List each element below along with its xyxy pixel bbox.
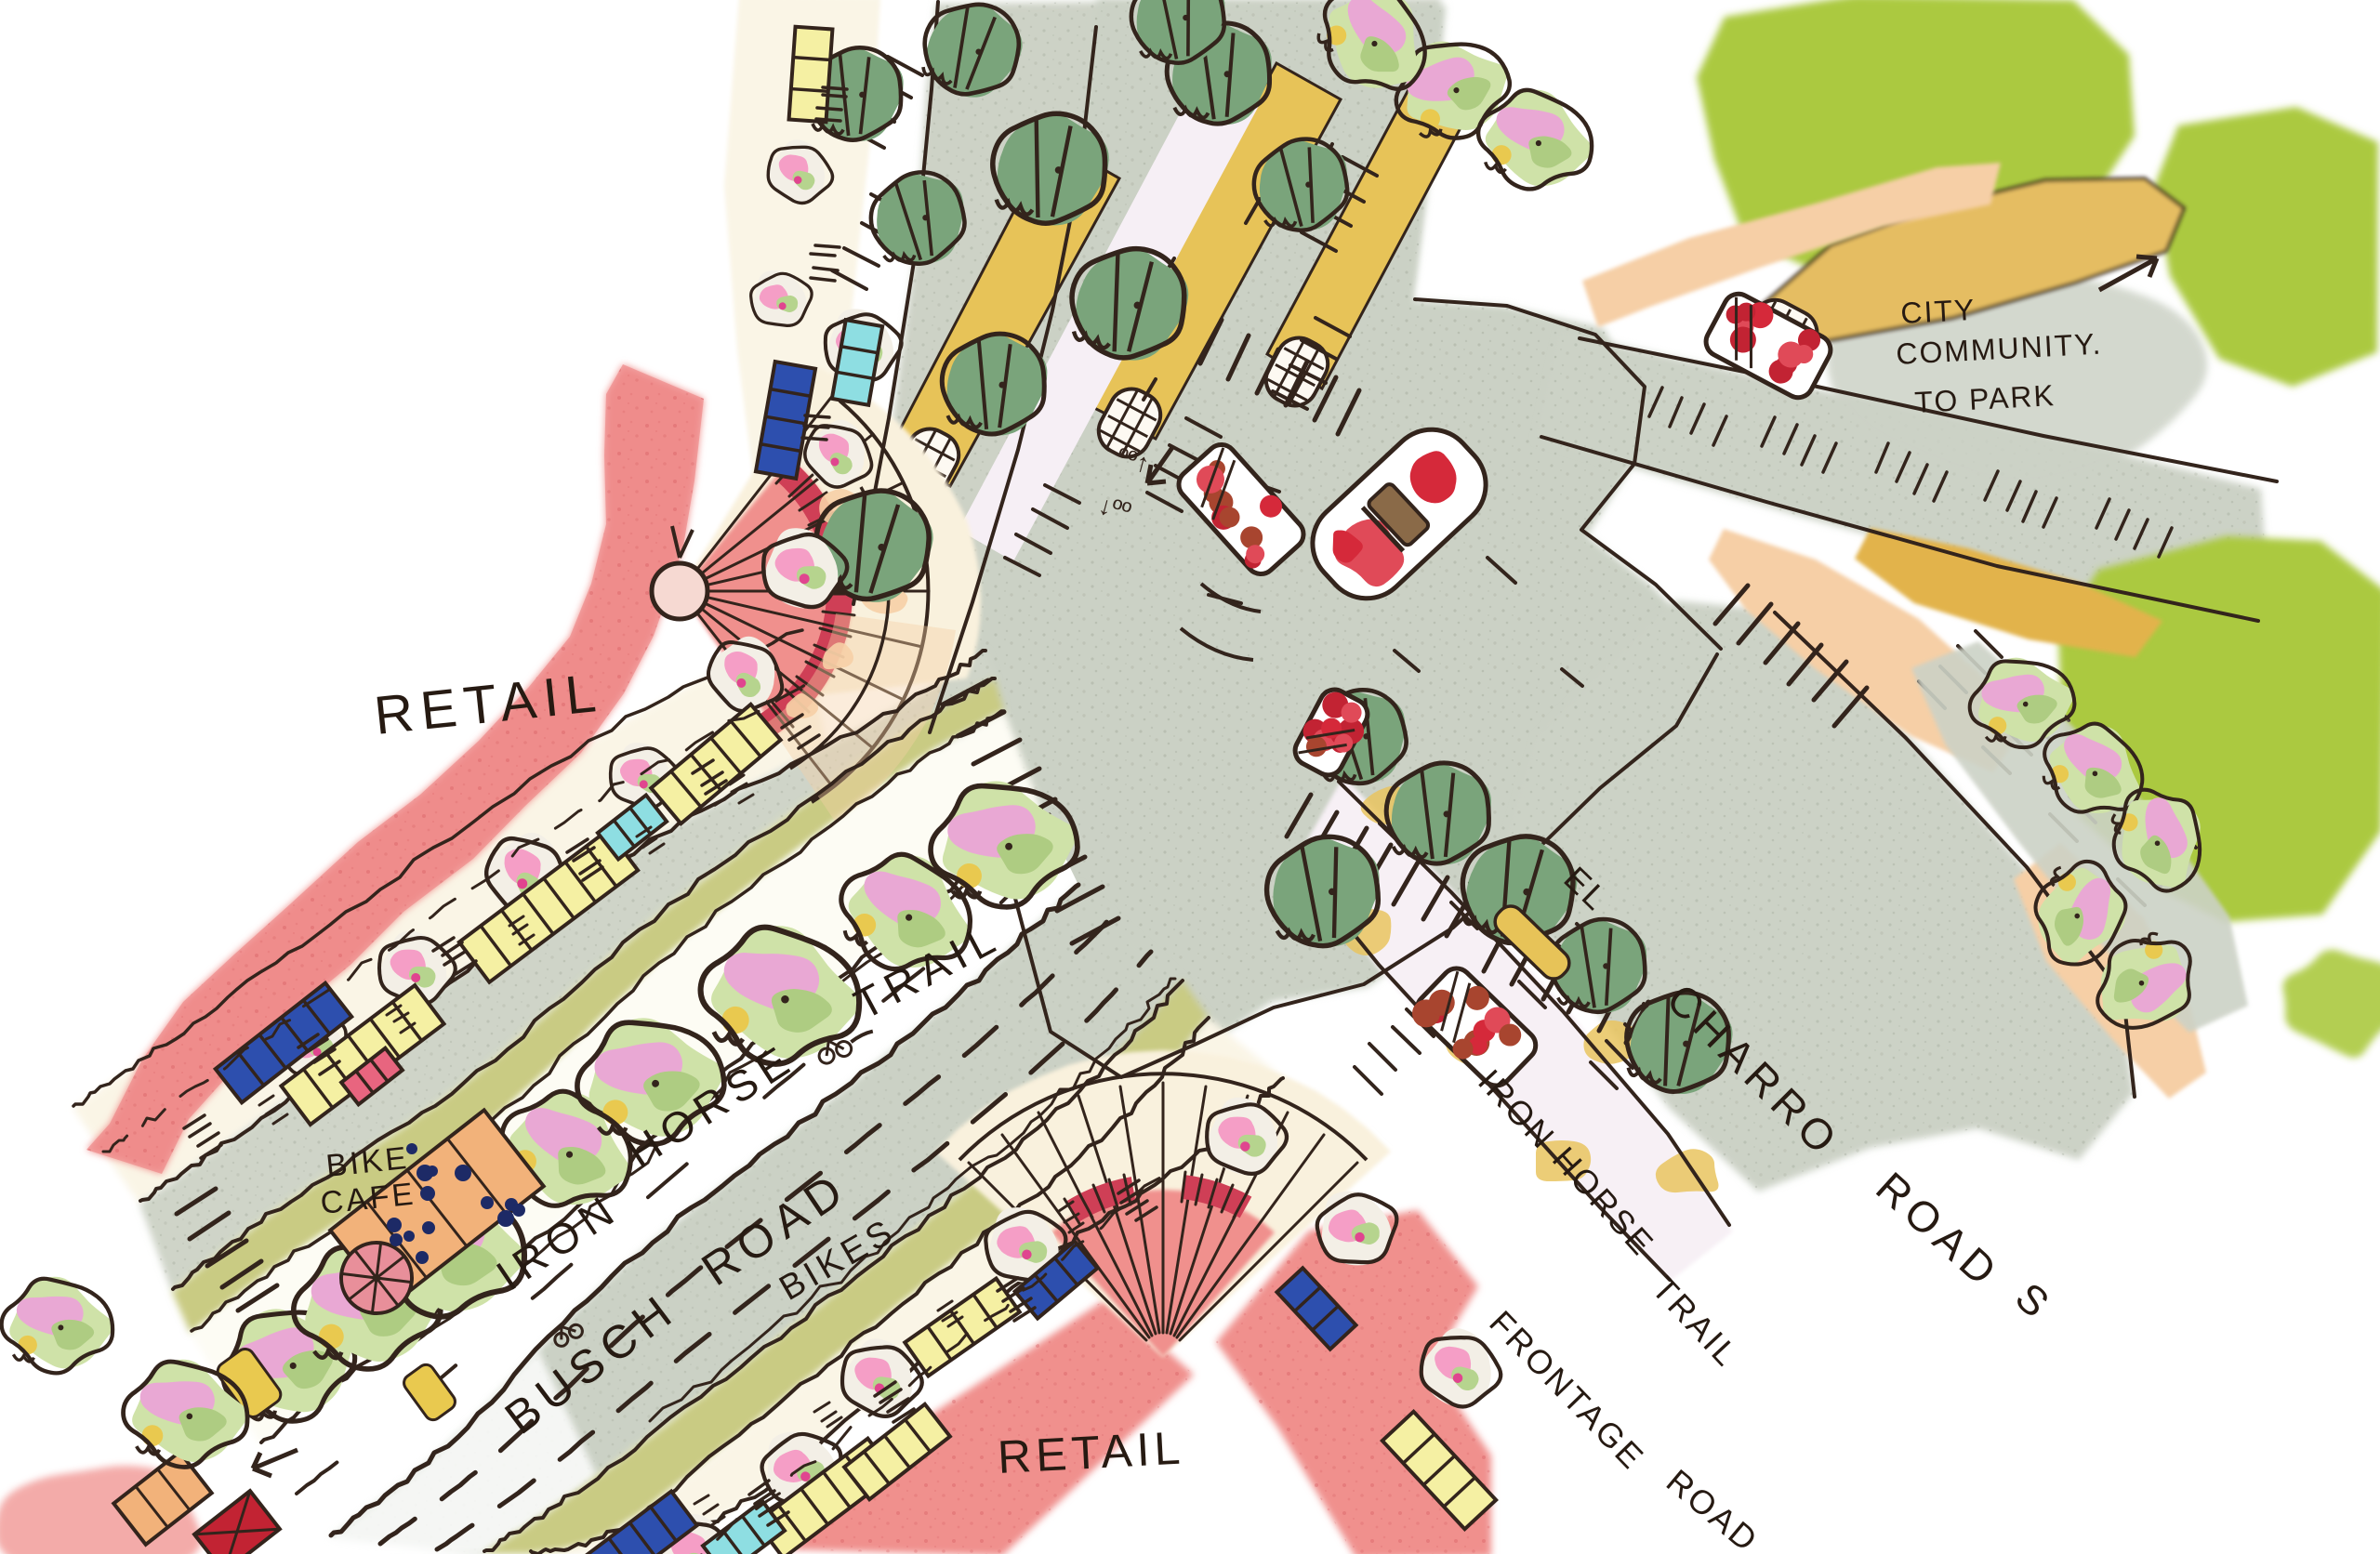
svg-text:RETAIL: RETAIL — [997, 1422, 1186, 1483]
svg-text:CITY: CITY — [1899, 293, 1977, 330]
